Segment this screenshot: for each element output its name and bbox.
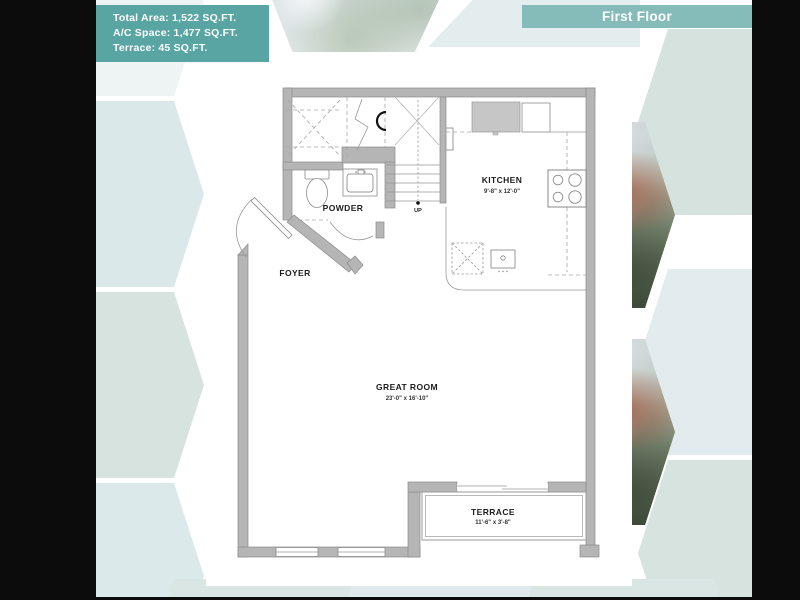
kitchen-label: KITCHEN [482,175,523,185]
powder-door-swing-arc [330,222,373,240]
toilet-fixture [305,170,329,208]
floor-title-label: First Floor [602,9,672,24]
powder-label: POWDER [323,203,364,213]
hexagon-tile [96,101,204,287]
sliding-door [457,484,548,491]
ac-space-line: A/C Space: 1,477 SQ.FT. [113,26,269,41]
vanity-sink-fixture [343,169,377,196]
screenshot-root: { "title": { "floor_label": "First Floor… [0,0,800,600]
kitchen-counter [446,207,586,290]
island-sink [491,250,515,268]
terrace-label: TERRACE [471,507,515,517]
refrigerator [522,103,550,132]
brochure-page: Total Area: 1,522 SQ.FT. A/C Space: 1,47… [96,0,752,597]
great-room-dims: 23'-0" x 16'-10" [386,396,429,402]
great-room-label: GREAT ROOM [376,382,438,392]
area-summary-box: Total Area: 1,522 SQ.FT. A/C Space: 1,47… [96,5,269,62]
closet [446,128,453,150]
floor-plan-paper: UP [206,52,632,586]
terrace-dims: 11'-6" x 3'-8" [475,520,511,526]
terrace-area-line: Terrace: 45 SQ.FT. [113,41,269,56]
total-area-line: Total Area: 1,522 SQ.FT. [113,11,269,26]
floor-plan: UP [206,52,632,586]
kitchen-dims: 9'-8" x 12'-0" [484,189,520,195]
up-label: UP [414,208,422,214]
hexagon-tile [96,292,204,478]
kitchen-island [452,243,515,274]
stove-fixture [548,170,586,207]
floor-title-bar: First Floor [522,5,752,28]
foyer-label: FOYER [279,268,310,278]
